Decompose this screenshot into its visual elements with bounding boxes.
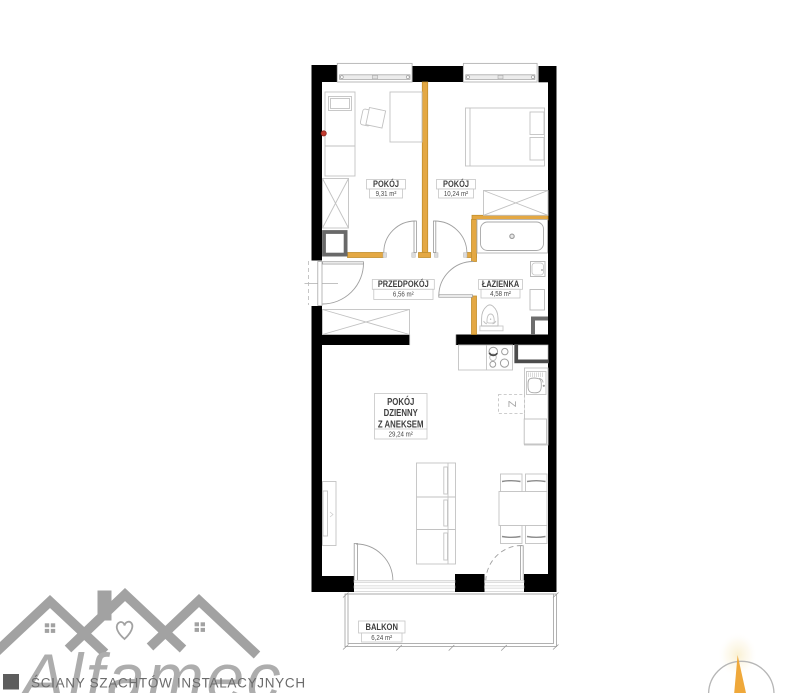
svg-text:6,24 m²: 6,24 m² (371, 635, 392, 643)
svg-text:POKÓJ: POKÓJ (387, 395, 414, 407)
svg-text:29,24 m²: 29,24 m² (389, 431, 414, 439)
svg-text:ŁAZIENKA: ŁAZIENKA (482, 278, 519, 289)
svg-text:9,31 m²: 9,31 m² (376, 190, 397, 198)
svg-text:PRZEDPOKÓJ: PRZEDPOKÓJ (378, 277, 429, 289)
svg-text:POKÓJ: POKÓJ (373, 177, 399, 189)
svg-text:Z: Z (506, 401, 518, 408)
svg-text:POKÓJ: POKÓJ (443, 177, 469, 189)
svg-text:10,24 m²: 10,24 m² (444, 190, 469, 198)
svg-text:ŚCIANY SZACHTÓW INSTALACYJNYCH: ŚCIANY SZACHTÓW INSTALACYJNYCH (31, 676, 306, 691)
svg-text:Z ANEKSEM: Z ANEKSEM (378, 418, 424, 429)
svg-text:DZIENNY: DZIENNY (384, 407, 418, 418)
svg-text:6,56 m²: 6,56 m² (393, 291, 414, 299)
svg-text:BALKON: BALKON (365, 621, 397, 632)
svg-text:4,58 m²: 4,58 m² (490, 291, 511, 299)
